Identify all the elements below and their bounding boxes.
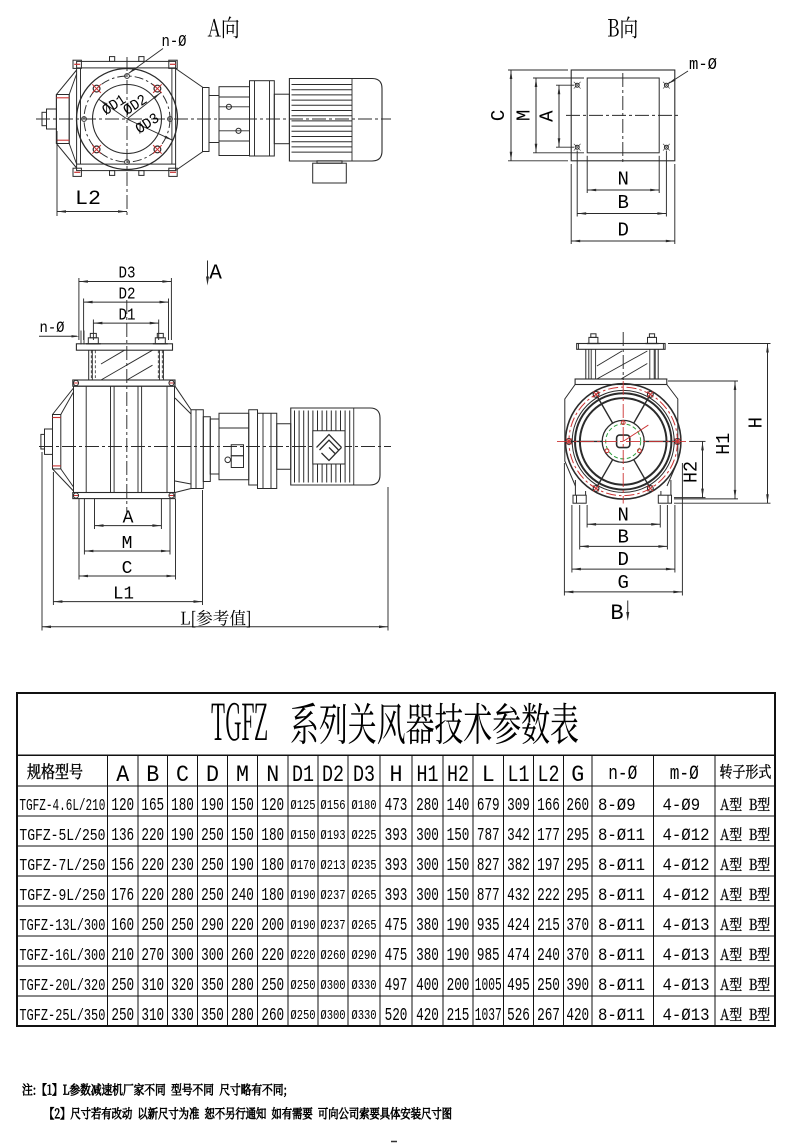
svg-text:342: 342	[507, 825, 530, 846]
svg-text:197: 197	[537, 855, 560, 876]
svg-text:295: 295	[566, 825, 589, 846]
svg-text:4-Ø12: 4-Ø12	[663, 826, 710, 846]
svg-text:8-Ø11: 8-Ø11	[598, 856, 645, 876]
svg-text:679: 679	[477, 795, 500, 816]
svg-text:150: 150	[447, 825, 470, 846]
svg-text:177: 177	[537, 825, 560, 846]
svg-text:370: 370	[566, 915, 589, 936]
svg-text:120: 120	[111, 795, 134, 816]
svg-text:L1: L1	[113, 585, 134, 605]
svg-text:190: 190	[171, 825, 194, 846]
svg-text:393: 393	[385, 855, 408, 876]
svg-text:300: 300	[416, 855, 439, 876]
svg-text:D: D	[617, 220, 628, 242]
svg-text:210: 210	[111, 945, 134, 966]
svg-text:150: 150	[447, 855, 470, 876]
svg-text:497: 497	[385, 975, 408, 996]
svg-text:Ø237: Ø237	[320, 888, 345, 904]
svg-text:H2: H2	[447, 762, 469, 788]
svg-text:8-Ø11: 8-Ø11	[598, 946, 645, 966]
svg-text:8-Ø9: 8-Ø9	[598, 796, 636, 816]
svg-text:220: 220	[141, 885, 164, 906]
svg-text:G: G	[571, 762, 584, 788]
svg-text:H1: H1	[417, 762, 439, 788]
svg-text:B: B	[617, 192, 628, 214]
svg-text:4-Ø13: 4-Ø13	[663, 1006, 710, 1026]
svg-text:309: 309	[507, 795, 530, 816]
svg-text:4-Ø12: 4-Ø12	[663, 856, 710, 876]
svg-text:L1: L1	[508, 762, 530, 788]
svg-text:240: 240	[231, 885, 254, 906]
svg-text:D1: D1	[292, 762, 314, 788]
svg-text:250: 250	[201, 825, 224, 846]
svg-text:330: 330	[171, 1005, 194, 1026]
svg-text:Ø260: Ø260	[320, 948, 345, 964]
svg-text:310: 310	[141, 975, 164, 996]
svg-text:280: 280	[231, 975, 254, 996]
svg-text:L2: L2	[538, 762, 560, 788]
svg-text:Ø193: Ø193	[320, 828, 345, 844]
svg-text:240: 240	[537, 945, 560, 966]
svg-text:300: 300	[171, 945, 194, 966]
svg-text:827: 827	[477, 855, 500, 876]
svg-text:4-Ø13: 4-Ø13	[663, 916, 710, 936]
svg-text:D3: D3	[353, 762, 375, 788]
svg-text:A: A	[209, 263, 222, 286]
svg-text:190: 190	[231, 855, 254, 876]
svg-text:B: B	[610, 601, 623, 626]
svg-text:215: 215	[447, 1005, 470, 1026]
svg-text:270: 270	[141, 945, 164, 966]
svg-text:H2: H2	[681, 461, 703, 483]
svg-text:985: 985	[477, 945, 500, 966]
svg-text:Ø265: Ø265	[351, 888, 376, 904]
svg-text:380: 380	[416, 945, 439, 966]
svg-text:D2: D2	[322, 762, 344, 788]
svg-text:Ø265: Ø265	[351, 918, 376, 934]
svg-text:166: 166	[537, 795, 560, 816]
svg-text:370: 370	[566, 945, 589, 966]
svg-text:250: 250	[141, 915, 164, 936]
svg-text:Ø213: Ø213	[320, 858, 345, 874]
svg-text:1005: 1005	[475, 975, 502, 996]
svg-text:160: 160	[111, 915, 134, 936]
svg-text:N: N	[617, 505, 628, 527]
svg-text:250: 250	[201, 855, 224, 876]
svg-text:295: 295	[566, 855, 589, 876]
svg-text:H1: H1	[713, 433, 735, 455]
svg-text:300: 300	[201, 945, 224, 966]
svg-text:250: 250	[537, 975, 560, 996]
svg-text:393: 393	[385, 885, 408, 906]
svg-text:4-Ø12: 4-Ø12	[663, 886, 710, 906]
svg-text:Ø180: Ø180	[351, 798, 376, 814]
svg-text:n-Ø: n-Ø	[608, 763, 637, 786]
svg-text:Ø290: Ø290	[351, 948, 376, 964]
svg-text:D: D	[617, 549, 628, 571]
svg-text:8-Ø11: 8-Ø11	[598, 916, 645, 936]
svg-text:150: 150	[231, 825, 254, 846]
svg-text:474: 474	[507, 945, 530, 966]
svg-text:TGFZ-25L/350: TGFZ-25L/350	[19, 1007, 105, 1026]
svg-text:Ø250: Ø250	[290, 1008, 315, 1024]
svg-text:TGFZ-4.6L/210: TGFZ-4.6L/210	[19, 797, 105, 816]
svg-text:295: 295	[566, 885, 589, 906]
svg-text:190: 190	[447, 915, 470, 936]
svg-text:393: 393	[385, 825, 408, 846]
svg-text:250: 250	[111, 975, 134, 996]
svg-text:150: 150	[447, 885, 470, 906]
svg-text:Ø235: Ø235	[351, 858, 376, 874]
svg-text:475: 475	[385, 915, 408, 936]
svg-text:320: 320	[171, 975, 194, 996]
svg-text:Ø190: Ø190	[290, 888, 315, 904]
svg-text:D3: D3	[119, 265, 136, 284]
svg-text:M: M	[514, 110, 536, 121]
svg-text:220: 220	[141, 855, 164, 876]
svg-text:Ø250: Ø250	[290, 978, 315, 994]
svg-text:220: 220	[231, 915, 254, 936]
svg-text:TGFZ-20L/320: TGFZ-20L/320	[19, 977, 105, 996]
svg-text:TGFZ-5L/250: TGFZ-5L/250	[19, 827, 105, 846]
svg-text:400: 400	[416, 975, 439, 996]
svg-text:310: 310	[141, 1005, 164, 1026]
svg-text:290: 290	[201, 915, 224, 936]
svg-text:180: 180	[261, 855, 284, 876]
svg-text:Ø330: Ø330	[351, 978, 376, 994]
svg-text:495: 495	[507, 975, 530, 996]
svg-text:A: A	[123, 509, 134, 529]
svg-text:250: 250	[261, 975, 284, 996]
svg-text:222: 222	[537, 885, 560, 906]
svg-text:8-Ø11: 8-Ø11	[598, 976, 645, 996]
svg-text:260: 260	[261, 1005, 284, 1026]
svg-text:A: A	[116, 762, 129, 788]
svg-text:M: M	[236, 762, 249, 788]
svg-text:TGFZ-9L/250: TGFZ-9L/250	[19, 887, 105, 906]
svg-text:520: 520	[385, 1005, 408, 1026]
svg-text:473: 473	[385, 795, 408, 816]
svg-text:Ø330: Ø330	[351, 1008, 376, 1024]
svg-text:Ø300: Ø300	[320, 1008, 345, 1024]
svg-text:4-Ø9: 4-Ø9	[663, 796, 701, 816]
svg-text:267: 267	[537, 1005, 560, 1026]
svg-text:N: N	[617, 169, 628, 191]
svg-text:H: H	[390, 762, 403, 788]
svg-text:220: 220	[261, 945, 284, 966]
svg-text:M: M	[122, 534, 133, 554]
svg-text:TGFZ-13L/300: TGFZ-13L/300	[19, 917, 105, 936]
svg-text:8-Ø11: 8-Ø11	[598, 826, 645, 846]
svg-text:165: 165	[141, 795, 164, 816]
svg-text:200: 200	[261, 915, 284, 936]
svg-text:350: 350	[201, 975, 224, 996]
svg-text:n-Ø: n-Ø	[40, 319, 65, 337]
svg-text:Ø220: Ø220	[290, 948, 315, 964]
svg-text:B: B	[617, 527, 628, 549]
svg-text:N: N	[266, 762, 279, 788]
svg-text:424: 424	[507, 915, 530, 936]
svg-text:260: 260	[231, 945, 254, 966]
svg-text:140: 140	[447, 795, 470, 816]
svg-text:8-Ø11: 8-Ø11	[598, 886, 645, 906]
svg-text:190: 190	[447, 945, 470, 966]
svg-text:250: 250	[171, 915, 194, 936]
svg-text:Ø225: Ø225	[351, 828, 376, 844]
svg-text:420: 420	[566, 1005, 589, 1026]
svg-text:230: 230	[171, 855, 194, 876]
svg-text:Ø190: Ø190	[290, 918, 315, 934]
svg-text:m-Ø: m-Ø	[670, 763, 699, 786]
svg-text:250: 250	[111, 1005, 134, 1026]
svg-text:Ø237: Ø237	[320, 918, 345, 934]
svg-text:420: 420	[416, 1005, 439, 1026]
svg-text:150: 150	[231, 795, 254, 816]
svg-text:120: 120	[261, 795, 284, 816]
svg-text:526: 526	[507, 1005, 530, 1026]
svg-text:180: 180	[261, 885, 284, 906]
svg-text:250: 250	[201, 885, 224, 906]
svg-text:TGFZ-7L/250: TGFZ-7L/250	[19, 857, 105, 876]
svg-text:877: 877	[477, 885, 500, 906]
svg-text:280: 280	[171, 885, 194, 906]
svg-text:TGFZ-16L/300: TGFZ-16L/300	[19, 947, 105, 966]
svg-text:4-Ø13: 4-Ø13	[663, 946, 710, 966]
svg-text:G: G	[617, 572, 628, 594]
svg-text:787: 787	[477, 825, 500, 846]
svg-text:215: 215	[537, 915, 560, 936]
svg-text:380: 380	[416, 915, 439, 936]
svg-text:180: 180	[171, 795, 194, 816]
svg-text:180: 180	[261, 825, 284, 846]
svg-text:D: D	[206, 762, 219, 788]
svg-text:4-Ø13: 4-Ø13	[663, 976, 710, 996]
svg-text:C: C	[488, 110, 510, 121]
svg-text:220: 220	[141, 825, 164, 846]
svg-text:156: 156	[111, 855, 134, 876]
svg-text:m-Ø: m-Ø	[689, 56, 717, 75]
svg-text:C: C	[176, 762, 189, 788]
svg-text:260: 260	[566, 795, 589, 816]
svg-text:8-Ø11: 8-Ø11	[598, 1006, 645, 1026]
svg-text:280: 280	[231, 1005, 254, 1026]
svg-text:280: 280	[416, 795, 439, 816]
svg-text:350: 350	[201, 1005, 224, 1026]
svg-text:136: 136	[111, 825, 134, 846]
svg-text:Ø300: Ø300	[320, 978, 345, 994]
svg-text:382: 382	[507, 855, 530, 876]
svg-text:H: H	[746, 417, 768, 428]
svg-text:Ø150: Ø150	[290, 828, 315, 844]
svg-text:1037: 1037	[475, 1005, 502, 1026]
svg-text:A: A	[537, 110, 559, 122]
svg-text:Ø156: Ø156	[320, 798, 345, 814]
svg-text:475: 475	[385, 945, 408, 966]
svg-text:L: L	[482, 762, 495, 788]
svg-text:L2: L2	[75, 188, 101, 211]
svg-text:190: 190	[201, 795, 224, 816]
svg-text:B: B	[146, 762, 159, 788]
svg-text:200: 200	[447, 975, 470, 996]
svg-text:300: 300	[416, 825, 439, 846]
svg-text:C: C	[122, 559, 133, 579]
svg-text:432: 432	[507, 885, 530, 906]
svg-text:390: 390	[566, 975, 589, 996]
svg-text:Ø170: Ø170	[290, 858, 315, 874]
svg-text:300: 300	[416, 885, 439, 906]
svg-text:935: 935	[477, 915, 500, 936]
svg-text:n-Ø: n-Ø	[162, 33, 187, 52]
svg-text:Ø125: Ø125	[290, 798, 315, 814]
svg-text:176: 176	[111, 885, 134, 906]
